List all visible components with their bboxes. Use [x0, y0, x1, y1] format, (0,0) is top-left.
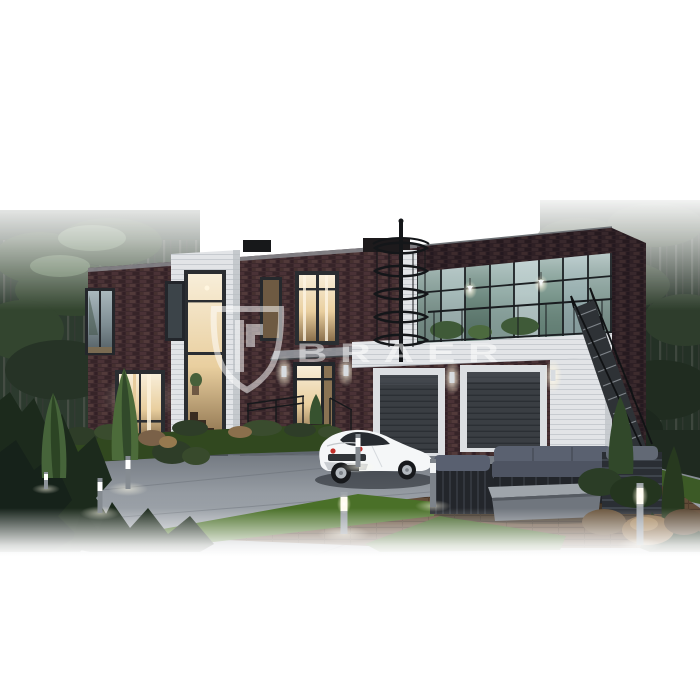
upper-left-window [85, 288, 115, 355]
bottom-fade [0, 508, 700, 568]
taillight-left [330, 448, 335, 453]
upper-center-window [295, 271, 339, 345]
garage-sconce-2 [544, 359, 562, 393]
watermark-brand: BRAER [297, 338, 512, 368]
scene: BRAER [0, 0, 700, 700]
front-wheel [398, 461, 416, 480]
roof-vent [243, 240, 271, 252]
narrow-window [165, 281, 185, 341]
architectural-render: BRAER [0, 0, 700, 700]
interior-plant [190, 373, 202, 387]
glass-pavilion [403, 227, 612, 349]
entrance-sconce-left [275, 356, 293, 388]
garage-door-2 [460, 365, 547, 452]
